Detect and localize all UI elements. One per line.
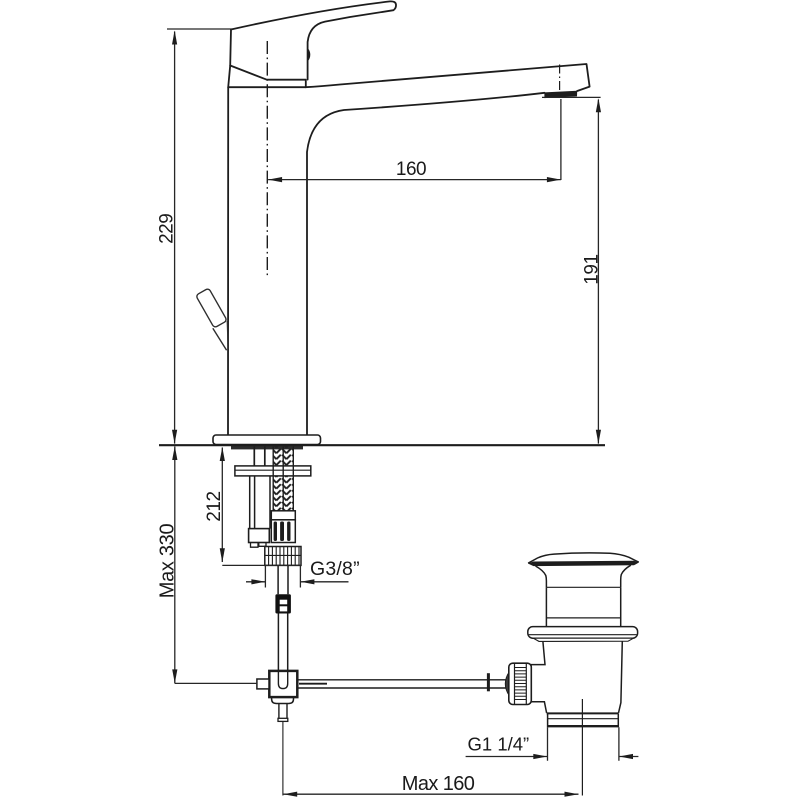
svg-text:Max 330: Max 330 [156,524,178,599]
svg-text:229: 229 [156,214,177,244]
svg-text:G1 1/4”: G1 1/4” [468,734,530,755]
svg-text:G3/8”: G3/8” [310,558,360,580]
svg-text:160: 160 [396,159,426,180]
svg-text:212: 212 [204,491,225,521]
svg-text:Max 160: Max 160 [402,773,475,795]
svg-text:191: 191 [581,254,602,284]
